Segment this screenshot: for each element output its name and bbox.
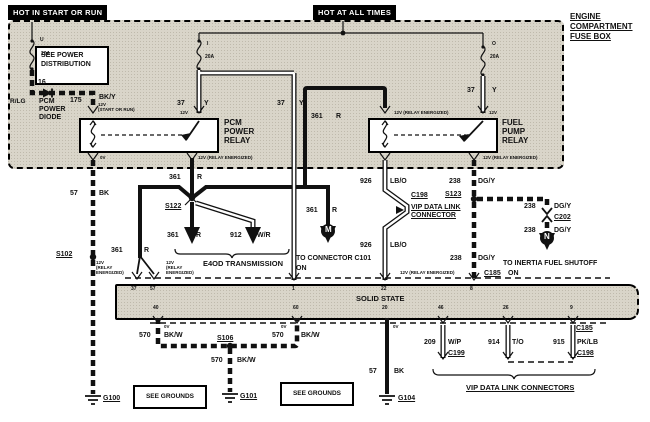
wire-y-label-a: Y bbox=[204, 100, 209, 108]
voltage-0v-c: 0V bbox=[281, 324, 287, 329]
connector-c202-icon bbox=[542, 208, 552, 222]
wire-dgy-label-a: DG/Y bbox=[478, 178, 495, 186]
to-connector-c101-label: TO CONNECTOR C101 bbox=[296, 255, 371, 263]
engine-fuse-box-label-3: FUSE BOX bbox=[570, 33, 611, 42]
voltage-12v-start-label: 12V (START OR RUN) bbox=[98, 102, 135, 112]
fuse-o-rating: 20A bbox=[490, 55, 499, 61]
fuse-u-icon bbox=[30, 22, 34, 71]
wire-912-label: 912 bbox=[230, 232, 242, 240]
e4od-bracket bbox=[175, 249, 289, 258]
wire-lbo-label-b: LB/O bbox=[390, 242, 407, 250]
ground-g104-label: G104 bbox=[398, 395, 415, 403]
engine-fuse-box-label-1: ENGINE bbox=[570, 13, 601, 22]
hot-at-all-times-banner: HOT AT ALL TIMES bbox=[313, 5, 396, 20]
connector-c199-label: C199 bbox=[448, 350, 465, 358]
wiring-diagram: SEE POWER DISTRIBUTION SEE GROUNDS SEE G… bbox=[0, 0, 650, 422]
hot-in-start-or-run-banner: HOT IN START OR RUN bbox=[8, 5, 107, 20]
wire-r-label-a: R bbox=[197, 174, 202, 182]
vip-data-link-connectors-label: VIP DATA LINK CONNECTORS bbox=[466, 384, 574, 392]
wire-361-label-c: 361 bbox=[167, 232, 179, 240]
pin-22: 22 bbox=[381, 287, 387, 293]
e4od-transmission-label: E4OD TRANSMISSION bbox=[203, 260, 283, 268]
wire-rlg-label: R/LG bbox=[10, 98, 26, 105]
pin-26: 26 bbox=[503, 306, 509, 312]
splice-s122-label: S122 bbox=[165, 203, 181, 211]
fuse-o-icon bbox=[481, 33, 485, 77]
pcm-power-relay-label: PCM POWER RELAY bbox=[224, 119, 254, 146]
fuel-pump-relay-label: FUEL PUMP RELAY bbox=[502, 119, 528, 146]
pin-37: 37 bbox=[131, 287, 137, 293]
circuit-570-wire bbox=[158, 318, 297, 392]
wire-914-label: 914 bbox=[488, 339, 500, 347]
wire-r-label-c: R bbox=[196, 232, 201, 240]
wire-926-label-b: 926 bbox=[360, 242, 372, 250]
wire-lbo-label-a: LB/O bbox=[390, 178, 407, 186]
pin-1: 1 bbox=[292, 287, 295, 293]
wire-361-label-d: 361 bbox=[306, 207, 318, 215]
ground-g101-label: G101 bbox=[240, 393, 257, 401]
wire-175-label: 175 bbox=[70, 97, 82, 105]
wire-r-label-b: R bbox=[144, 247, 149, 255]
voltage-12v-a: 12V bbox=[180, 110, 188, 115]
fuse-o-id: O bbox=[492, 42, 496, 48]
pin-60: 60 bbox=[293, 306, 299, 312]
wire-57-label-b: 57 bbox=[369, 368, 377, 376]
voltage-12v-relay-a: 12V (RELAY ENERGIZED) bbox=[394, 110, 449, 115]
splice-s123-dot bbox=[471, 196, 477, 202]
wire-wr-label: W/R bbox=[257, 232, 271, 240]
wiring-layer bbox=[0, 0, 650, 422]
wire-pklb-label: PK/LB bbox=[577, 339, 598, 347]
diode-icon bbox=[43, 89, 52, 98]
voltage-0v-a: 0V bbox=[100, 155, 106, 160]
pin-40: 40 bbox=[153, 306, 159, 312]
circuit-16-label: 16 bbox=[38, 79, 46, 87]
vip-data-link-connector-label: VIP DATA LINK CONNECTOR bbox=[411, 204, 461, 220]
ground-g101-icon bbox=[222, 394, 238, 402]
wire-361-label-b: 361 bbox=[111, 247, 123, 255]
wire-wp-label: W/P bbox=[448, 339, 461, 347]
wire-926-label-a: 926 bbox=[360, 178, 372, 186]
ground-g100-label: G100 bbox=[103, 395, 120, 403]
wire-bkw-label-c: BK/W bbox=[237, 357, 256, 365]
splice-s123-label: S123 bbox=[445, 191, 461, 199]
wire-bkw-label-a: BK/W bbox=[164, 332, 183, 340]
wire-57-label-a: 57 bbox=[70, 190, 78, 198]
solid-state-bottom-terminals bbox=[153, 316, 578, 323]
pin-8: 8 bbox=[470, 287, 473, 293]
wire-570-label-b: 570 bbox=[272, 332, 284, 340]
pin-9: 9 bbox=[570, 306, 573, 312]
pin-37-57-fork bbox=[137, 256, 154, 274]
ground-g104-icon bbox=[379, 396, 395, 404]
wire-361-label-a: 361 bbox=[169, 174, 181, 182]
fuse-i-id: I bbox=[207, 42, 208, 48]
wire-y-label-c: Y bbox=[492, 87, 497, 95]
voltage-0v-b: 0V bbox=[164, 324, 170, 329]
voltage-12v-b: 12V bbox=[489, 110, 497, 115]
to-inertia-label: TO INERTIA FUEL SHUTOFF bbox=[503, 260, 597, 268]
pin-57: 57 bbox=[150, 287, 156, 293]
connector-c198-label-b: C198 bbox=[577, 350, 594, 358]
wire-dgy-label-c: DG/Y bbox=[554, 203, 571, 211]
wire-37-label-a: 37 bbox=[177, 100, 185, 108]
connector-c185-label-b: C185 bbox=[576, 325, 593, 333]
solid-state-label: SOLID STATE bbox=[356, 295, 404, 303]
connector-n-letter: N bbox=[544, 233, 550, 242]
wire-361-label-e: 361 bbox=[311, 113, 323, 121]
splice-s106-label: S106 bbox=[217, 335, 233, 343]
wire-915-label: 915 bbox=[553, 339, 565, 347]
fuse-i-rating: 20A bbox=[205, 55, 214, 61]
pin-20: 20 bbox=[382, 306, 388, 312]
fuse-u-rating: 20A bbox=[41, 52, 50, 58]
voltage-0v-d: 0V bbox=[393, 324, 399, 329]
wire-r-label-d: R bbox=[332, 207, 337, 215]
wire-bk-label-a: BK bbox=[99, 190, 109, 198]
wire-37-label-c: 37 bbox=[467, 87, 475, 95]
pcm-relay-coil-feed-terminal bbox=[88, 106, 98, 113]
wire-238-label-d: 238 bbox=[524, 227, 536, 235]
splice-s102-label: S102 bbox=[56, 251, 72, 259]
wire-dgy-label-b: DG/Y bbox=[478, 255, 495, 263]
wire-570-label-c: 570 bbox=[211, 357, 223, 365]
to-connector-c101-on: ON bbox=[296, 265, 307, 273]
fuse-i-icon bbox=[197, 33, 201, 71]
wire-to-label: T/O bbox=[512, 339, 524, 347]
wire-dgy-label-d: DG/Y bbox=[554, 227, 571, 235]
wire-238-label-c: 238 bbox=[524, 203, 536, 211]
connector-c185-label-a: C185 bbox=[484, 270, 501, 278]
connector-m-letter: M bbox=[325, 226, 332, 235]
wire-y-label-b: Y bbox=[299, 100, 304, 108]
voltage-12v-relay-b: 12V (RELAY ENERGIZED) bbox=[198, 155, 253, 160]
wire-r-label-e: R bbox=[336, 113, 341, 121]
connector-c198-label-a: C198 bbox=[411, 192, 428, 200]
voltage-12v-relay-stack-a: 12V (RELAY ENERGIZED) bbox=[96, 260, 124, 275]
ground-g100-icon bbox=[85, 396, 101, 404]
wire-209-label: 209 bbox=[424, 339, 436, 347]
connector-c202-label: C202 bbox=[554, 214, 571, 222]
fuse-u-id: U bbox=[40, 38, 44, 44]
wire-570-label-a: 570 bbox=[139, 332, 151, 340]
splice-s106-dot bbox=[227, 343, 233, 349]
voltage-12v-relay-c: 12V (RELAY ENERGIZED) bbox=[483, 155, 538, 160]
wire-bk-label-b: BK bbox=[394, 368, 404, 376]
vip-connectors-bracket bbox=[433, 369, 595, 379]
engine-fuse-box-label-2: COMPARTMENT bbox=[570, 23, 633, 32]
wire-bky-label: BK/Y bbox=[99, 94, 116, 102]
pin-46: 46 bbox=[438, 306, 444, 312]
pcm-power-diode-label: PCM POWER DIODE bbox=[39, 98, 65, 121]
to-inertia-on: ON bbox=[508, 270, 519, 278]
wire-bkw-label-b: BK/W bbox=[301, 332, 320, 340]
wire-238-label-b: 238 bbox=[450, 255, 462, 263]
wire-37-label-b: 37 bbox=[277, 100, 285, 108]
voltage-12v-relay-stack-b: 12V (RELAY ENERGIZED) bbox=[166, 260, 194, 275]
wire-238-label-a: 238 bbox=[449, 178, 461, 186]
voltage-12v-relay-d: 12V (RELAY ENERGIZED) bbox=[400, 270, 455, 275]
